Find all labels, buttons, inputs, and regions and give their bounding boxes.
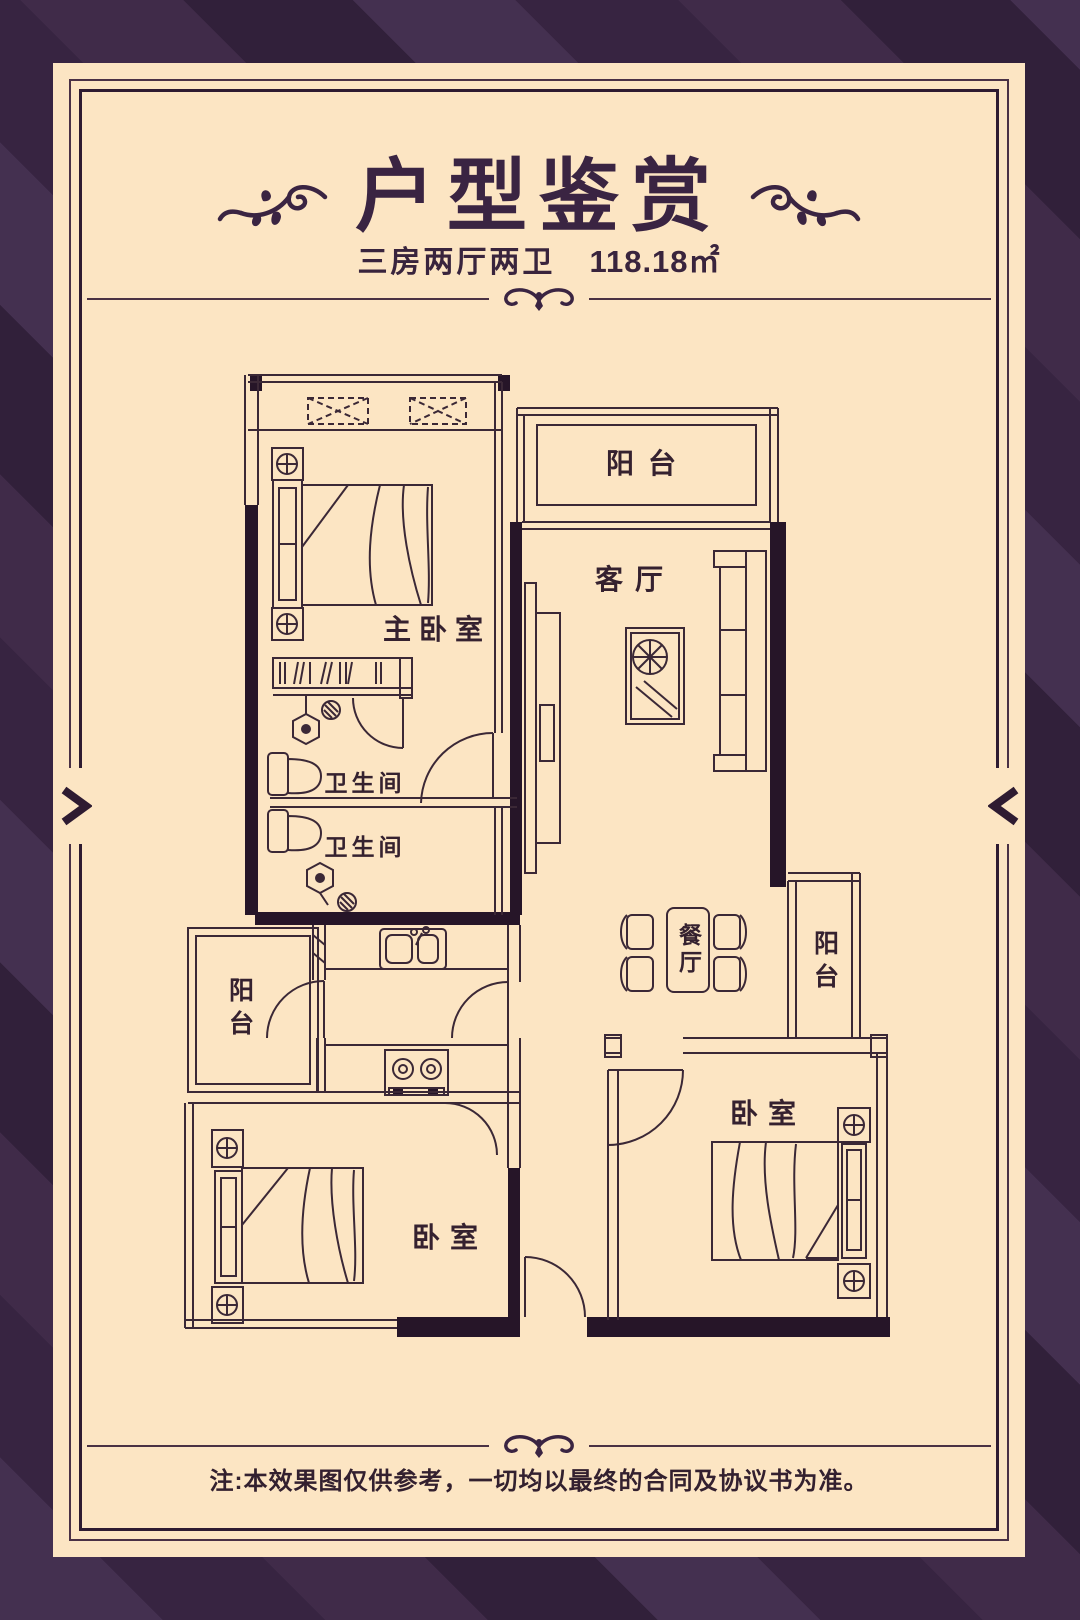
room-label-living-room: 客厅	[595, 563, 675, 596]
room-label-dining-room: 餐厅	[676, 923, 703, 977]
divider-ornament-icon	[489, 286, 589, 313]
poster-card: 户型鉴赏 三房两厅两卫 118.18㎡	[53, 63, 1025, 1557]
subtitle-area-text: 118.18㎡	[589, 236, 720, 281]
bathroom-divider-wall	[270, 798, 517, 807]
room-label-balcony-left: 阳台	[226, 977, 254, 1043]
room-label-balcony-right: 阳台	[811, 930, 839, 996]
chevron-left-icon[interactable]	[988, 768, 1024, 844]
bottom-divider	[87, 1445, 991, 1447]
disclaimer-text: 注:本效果图仅供参考，一切均以最终的合同及协议书为准。	[53, 1461, 1025, 1496]
flourish-left-icon	[217, 181, 329, 229]
flourish-right-icon	[749, 181, 861, 229]
entrance-door	[525, 1257, 585, 1317]
bedroom-left-bed	[212, 1130, 363, 1323]
balcony-left-walls	[188, 928, 318, 1092]
bedroom-right-bed	[712, 1108, 870, 1298]
bathroom-lower-fixtures	[268, 810, 356, 911]
room-label-bathroom-upper: 卫生间	[325, 771, 406, 796]
closet-rack	[273, 658, 412, 698]
tv-cabinet	[525, 583, 560, 873]
coffee-table	[626, 628, 684, 724]
divider-ornament-icon	[489, 1433, 589, 1460]
subtitle-layout-text: 三房两厅两卫	[357, 237, 555, 281]
sofa	[714, 551, 766, 771]
chevron-right-icon[interactable]	[56, 768, 92, 844]
room-label-master-bedroom: 主卧室	[383, 613, 491, 646]
room-label-balcony-top: 阳台	[606, 447, 690, 480]
master-door	[421, 733, 502, 915]
room-label-bedroom-right: 卧室	[730, 1097, 806, 1130]
poster-page: { "colors": { "background_stripe_light":…	[0, 0, 1080, 1620]
floor-plan: 阳台 客厅 主卧室 卫生间 卫生间 阳台 餐厅 阳台 卧室 卧室	[180, 355, 890, 1355]
master-bed	[272, 448, 432, 640]
kitchen	[267, 925, 520, 1168]
room-label-bedroom-left: 卧室	[412, 1221, 488, 1254]
master-bedroom-walls	[245, 375, 502, 733]
top-divider	[87, 298, 991, 300]
subtitle: 三房两厅两卫 118.18㎡	[53, 235, 1025, 281]
room-label-bathroom-lower: 卫生间	[325, 835, 406, 860]
page-title: 户型鉴赏	[355, 158, 723, 238]
